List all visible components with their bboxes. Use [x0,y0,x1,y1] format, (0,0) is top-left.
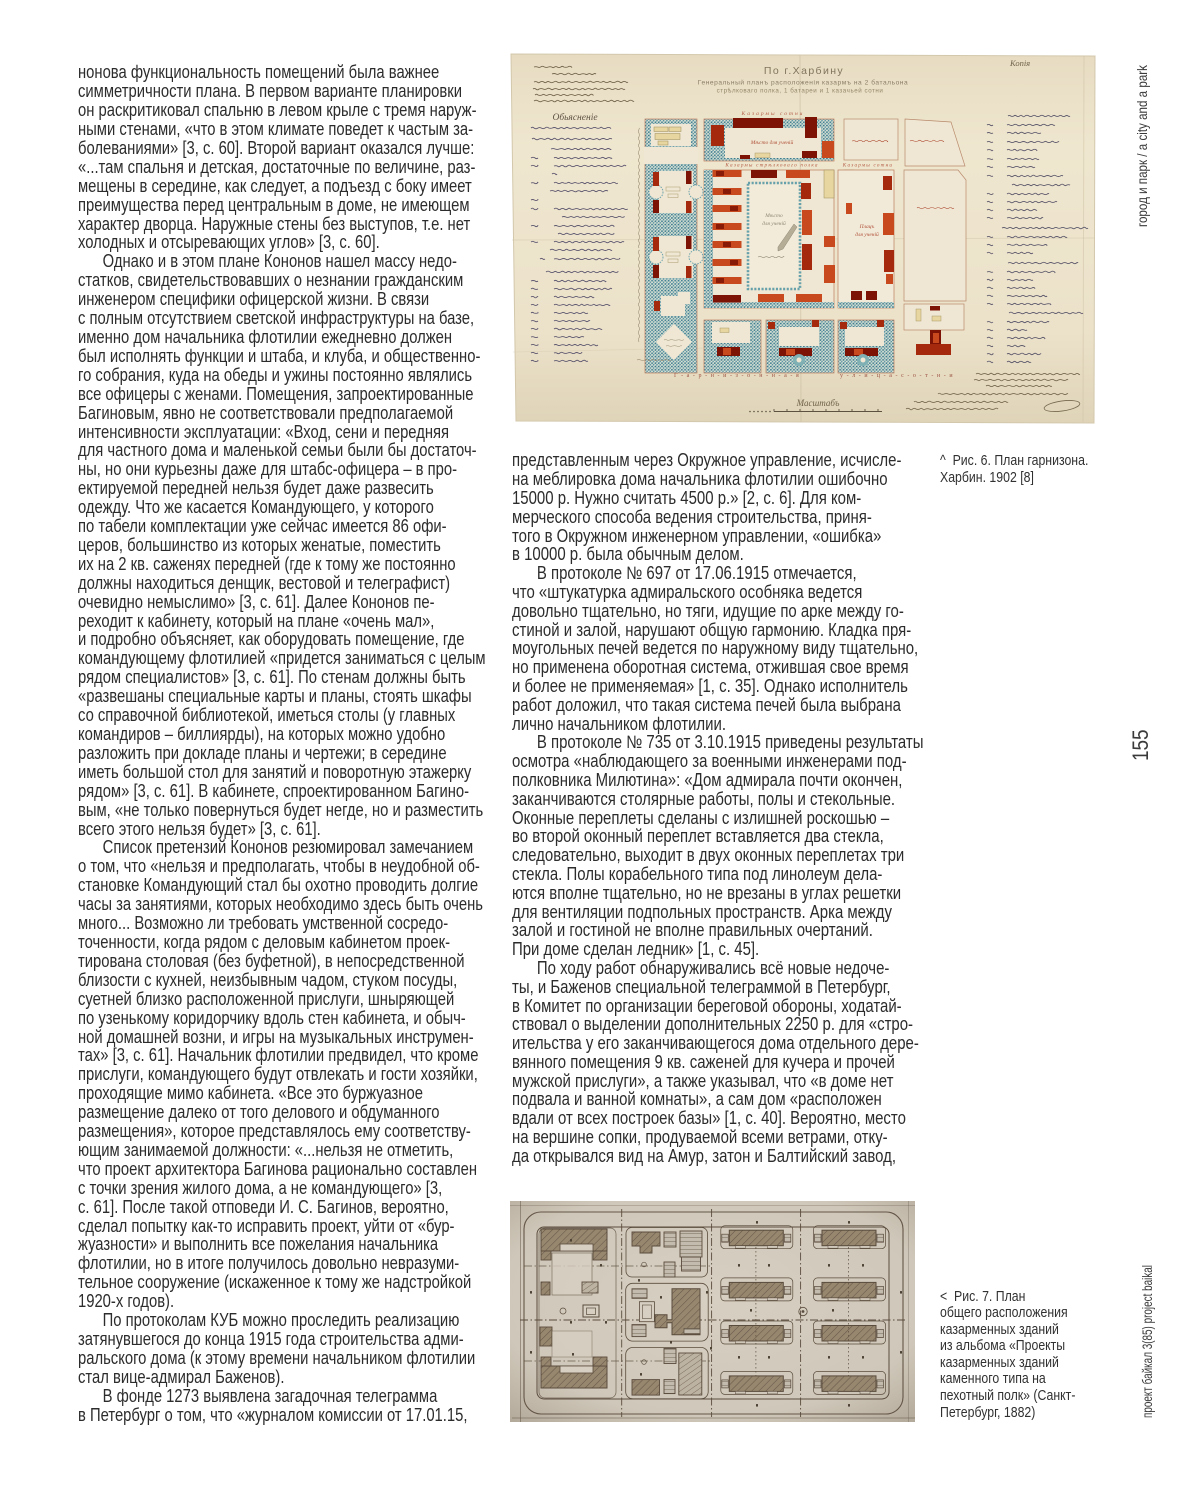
svg-text:для ученій: для ученій [762,220,786,227]
svg-text:По г.Харбину: По г.Харбину [764,65,844,77]
svg-text:Казармы сотни: Казармы сотни [741,111,805,117]
svg-text:Генеральный планъ расположенія: Генеральный планъ расположенія казармъ н… [698,79,908,87]
svg-text:Мѣсто для ученій: Мѣсто для ученій [750,139,794,146]
svg-text:Масштабъ: Масштабъ [796,398,840,408]
svg-text:Мѣсто: Мѣсто [764,213,783,219]
svg-text:Г-а-р-н-и-з-о-н-н-а-я: Г-а-р-н-и-з-о-н-н-а-я [674,373,802,379]
svg-text:Копія: Копія [1009,58,1030,68]
svg-text:Казармы стрѣлковаго полка: Казармы стрѣлковаго полка [724,163,818,169]
svg-text:для ученій: для ученій [855,231,879,238]
svg-text:Обьясненіе: Обьясненіе [552,112,597,123]
svg-text:Казармы сотни: Казармы сотни [842,163,893,169]
svg-text:стрѣлковаго полка, 1 батареи и: стрѣлковаго полка, 1 батареи и 1 казачье… [717,88,884,95]
svg-text:Плацъ: Плацъ [859,224,875,230]
svg-text:у-л-и-ц-а-с-о-т-н-и: у-л-и-ц-а-с-о-т-н-и [840,373,956,379]
